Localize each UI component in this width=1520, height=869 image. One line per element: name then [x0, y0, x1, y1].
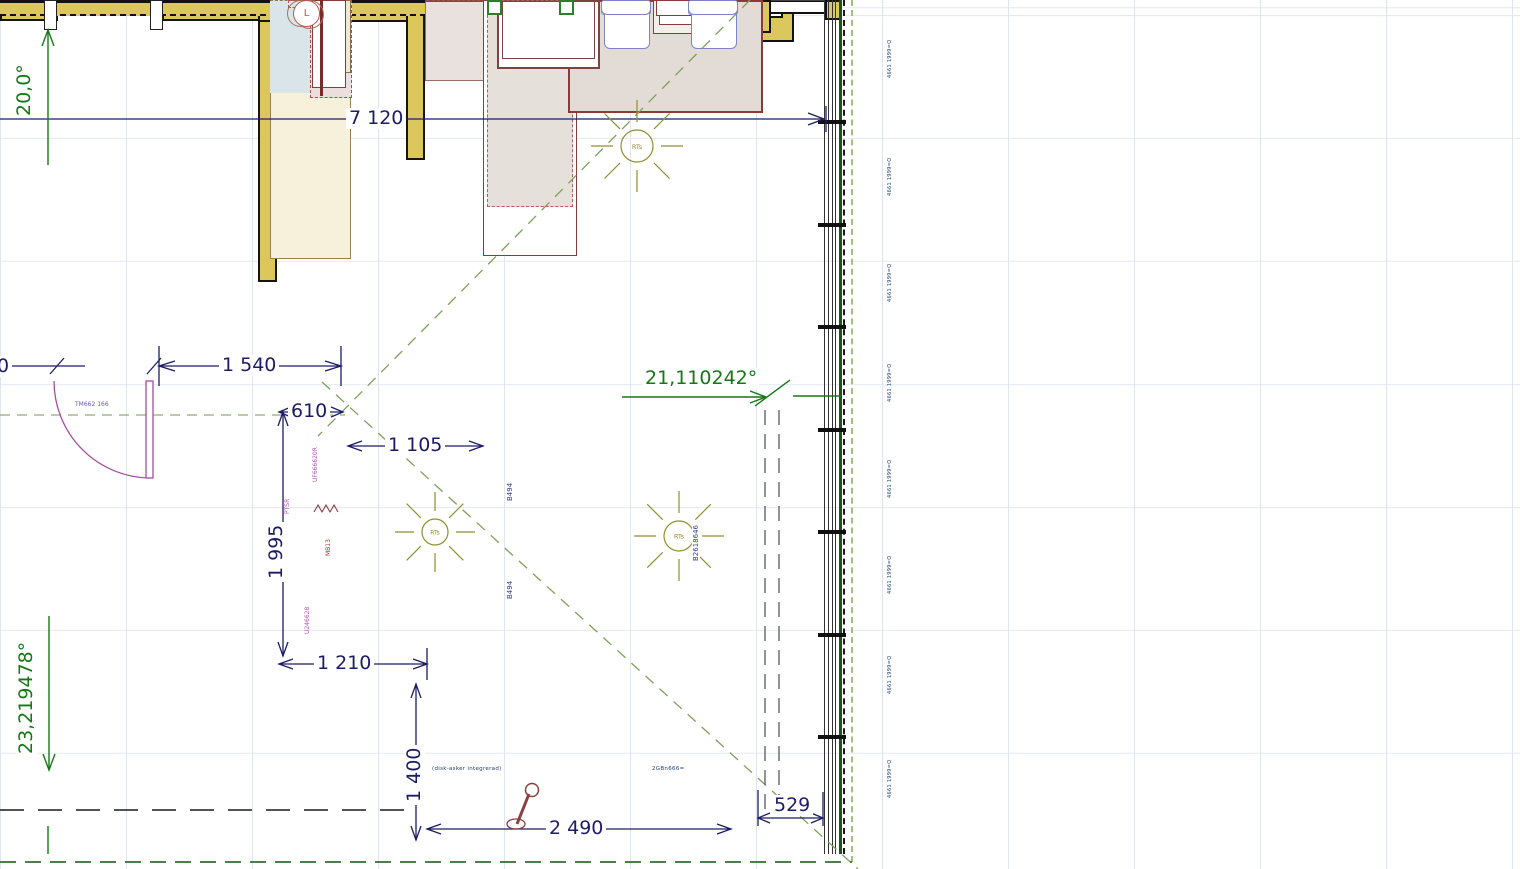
dimension-0-partial[interactable]: 0: [0, 356, 12, 377]
sink-note-label: PTSR: [284, 499, 291, 514]
window-bottom-right-line: [771, 0, 825, 1]
column-leader-dashed: [765, 410, 779, 818]
right-wall-line-1: [824, 0, 825, 854]
wall-tick: [818, 530, 846, 534]
dimension-1400[interactable]: 1 400: [404, 745, 425, 805]
wall-segment-label: 4661 1999=O: [887, 460, 893, 498]
door[interactable]: [54, 381, 153, 478]
sink-unit-label: MB13: [325, 539, 332, 556]
right-wall-green-line: [839, 0, 842, 854]
lamp-label: L: [304, 8, 310, 19]
wall-lower-vertical[interactable]: [406, 0, 425, 160]
ceiling-light[interactable]: RTs: [591, 100, 683, 192]
wall-segment-label: 4661 1999=O: [887, 656, 893, 694]
ceiling-light[interactable]: RTs: [395, 492, 475, 572]
dimension-1105[interactable]: 1 105: [385, 435, 445, 456]
wall-tick: [818, 223, 846, 227]
wall-tick: [818, 735, 846, 739]
cabinet-lower-label: U246628: [304, 607, 311, 634]
bench-label: B494: [506, 482, 514, 502]
wall-tick: [818, 633, 846, 637]
lamp-symbol[interactable]: L: [293, 0, 320, 27]
dimension-610[interactable]: 610: [288, 401, 330, 422]
bench-corner-block-left: [487, 0, 502, 15]
right-wall-line-4: [835, 0, 836, 854]
wall-segment-label: 4661 1999=O: [887, 264, 893, 302]
angle-21[interactable]: 21,110242°: [643, 368, 759, 389]
oven-label: 2GBn666=: [652, 766, 685, 772]
wall-bottom-band[interactable]: [0, 0, 426, 16]
cabinet-upper-label: UF666620R: [312, 447, 319, 482]
sink-fixture-detail: [314, 505, 338, 512]
right-wall-line-3: [832, 0, 833, 854]
right-wall-dashed-line: [843, 0, 845, 854]
door-jamb-right: [150, 0, 163, 30]
window-bottom-right[interactable]: [771, 0, 825, 14]
door-jamb-left: [44, 0, 57, 30]
dimension-1995[interactable]: 1 995: [266, 522, 287, 582]
light-label: RTs: [674, 533, 685, 541]
angle-20[interactable]: 20,0°: [14, 62, 35, 118]
dimension-7120[interactable]: 7 120: [346, 108, 406, 129]
wall-segment-label: 4661 1999=O: [887, 158, 893, 196]
ceiling-light[interactable]: RTs: [634, 491, 724, 581]
wall-segment-label: 4661 1999=O: [887, 760, 893, 798]
bottom-sink-box-inner: [502, 0, 595, 59]
dimension-1540[interactable]: 1 540: [219, 355, 279, 376]
wall-segment-label: 4661 1999=O: [887, 364, 893, 402]
chair-back: [688, 0, 738, 15]
dishwasher-label: (disk-asker integrerad): [432, 766, 502, 772]
dimension-529[interactable]: 529: [771, 795, 813, 816]
door-leaf: [146, 381, 153, 478]
light-label: RTs: [632, 143, 643, 151]
dimension-1210[interactable]: 1 210: [314, 653, 374, 674]
wall-tick: [818, 428, 846, 432]
dimension-2490[interactable]: 2 490: [546, 818, 606, 839]
wall-tick: [818, 325, 846, 329]
wall-segment-label: 4661 1999=O: [887, 40, 893, 78]
table-label: B2618646: [692, 524, 700, 562]
floor-plan-canvas: L: [0, 0, 1520, 869]
right-wall-line-2: [828, 0, 829, 854]
dimension-lines: [0, 106, 826, 840]
angle-23[interactable]: 23,219478°: [16, 640, 37, 756]
right-offset-dashed-line: [851, 0, 853, 862]
light-label: RTs: [430, 530, 440, 537]
bench-corner-block-right: [559, 0, 574, 15]
wall-tick: [818, 120, 846, 124]
bench-label: B494: [506, 580, 514, 600]
wall-segment-label: 4661 1999=O: [887, 556, 893, 594]
chair-back: [601, 0, 651, 15]
faucet: [507, 784, 539, 830]
door-swing-arc: [54, 381, 151, 478]
door-label: TM662 166: [75, 401, 109, 408]
